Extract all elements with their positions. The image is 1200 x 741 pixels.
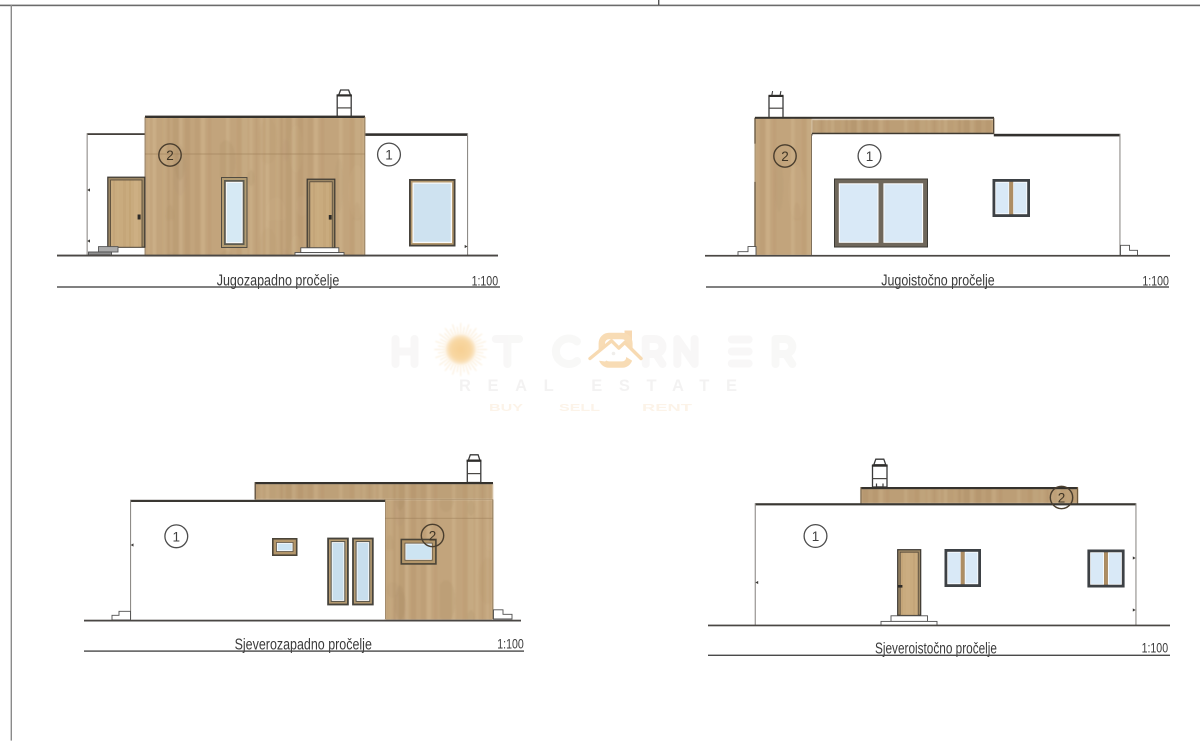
svg-text:2: 2	[1058, 491, 1066, 506]
svg-text:SELL: SELL	[559, 403, 600, 414]
svg-text:2: 2	[166, 148, 174, 163]
svg-text:BUY: BUY	[489, 403, 524, 414]
svg-text:1:100: 1:100	[1142, 641, 1169, 657]
svg-text:1: 1	[812, 529, 820, 544]
svg-text:1: 1	[385, 148, 393, 163]
svg-text:1: 1	[173, 529, 181, 544]
svg-text:2: 2	[781, 149, 789, 164]
svg-text:2: 2	[429, 529, 437, 544]
svg-text:1:100: 1:100	[497, 637, 524, 653]
svg-text:RENT: RENT	[642, 403, 692, 414]
svg-text:1: 1	[866, 149, 874, 164]
